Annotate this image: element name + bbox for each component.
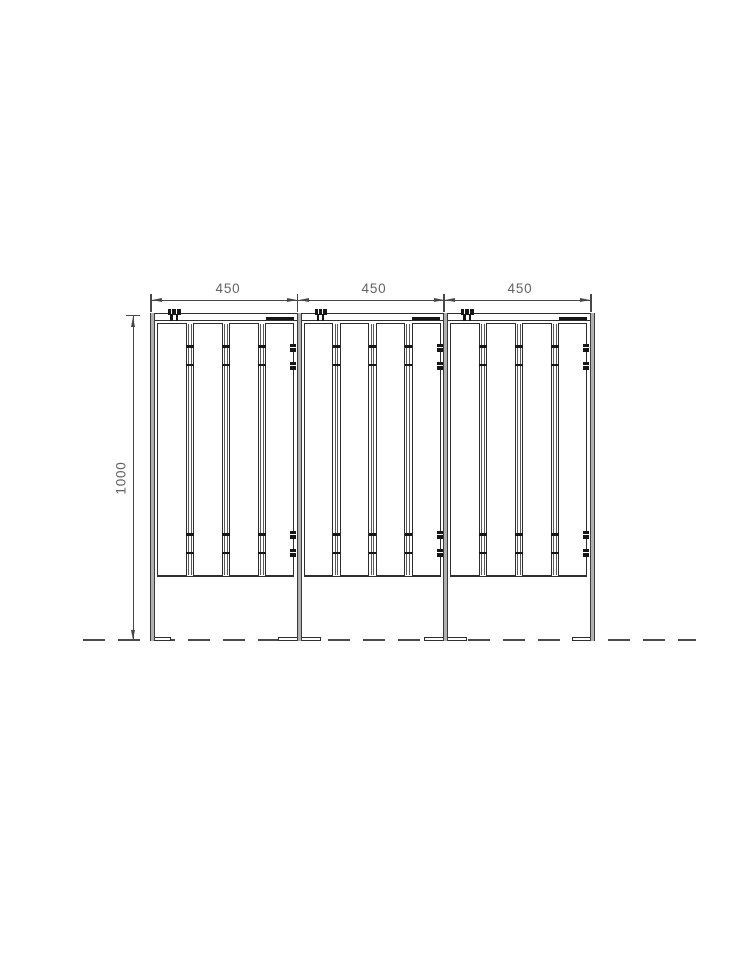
clamp-bolt	[463, 315, 465, 321]
rail-end-bracket	[412, 317, 440, 320]
dimension-arrow-left	[299, 298, 309, 302]
clamp-slit	[171, 309, 172, 314]
rear-rail-tick	[515, 533, 523, 536]
clamp-bolt	[317, 315, 319, 321]
slat-board	[486, 323, 515, 576]
clip-slit	[583, 365, 589, 366]
post-clip-fitting	[290, 549, 296, 558]
slat-board	[376, 323, 405, 576]
clip-slit	[583, 552, 589, 553]
clamp-bolt	[170, 315, 172, 321]
dimension-tick	[150, 294, 151, 312]
dimension-tick	[443, 294, 444, 312]
post-clip-fitting	[437, 344, 443, 353]
ground-dashed-line	[83, 639, 696, 641]
rear-rail-tick	[405, 533, 413, 536]
top-rail	[150, 313, 595, 321]
post-clip-fitting	[583, 362, 589, 371]
rear-rail-tick	[479, 345, 487, 348]
rear-rail-tick	[515, 364, 523, 367]
rear-rail-tick	[551, 533, 559, 536]
clip-slit	[437, 534, 443, 535]
clamp-slit	[318, 309, 319, 314]
rear-rail-tick	[333, 364, 341, 367]
dimension-arrow-right	[434, 298, 444, 302]
rear-rail-tick	[258, 533, 266, 536]
fence-post	[590, 313, 595, 641]
rear-rail-tick	[551, 345, 559, 348]
rear-rail-tick	[186, 552, 194, 555]
rear-rail-tick	[515, 345, 523, 348]
rear-rail-tick	[258, 345, 266, 348]
rear-rail-tick	[405, 364, 413, 367]
post-clip-fitting	[583, 531, 589, 540]
rear-rail-tick	[551, 552, 559, 555]
dimension-tick	[297, 294, 298, 312]
slat-board	[229, 323, 258, 576]
panel-bottom-edge	[304, 576, 441, 577]
clamp-slit	[469, 309, 470, 314]
rear-rail-tick	[222, 364, 230, 367]
slat-board	[340, 323, 369, 576]
rear-rail-tick	[551, 364, 559, 367]
rear-batten-edge	[260, 324, 264, 576]
rear-rail-tick	[333, 345, 341, 348]
slat-board	[193, 323, 222, 576]
rear-rail-tick	[222, 533, 230, 536]
dim-label-overall-height: 1000	[114, 461, 128, 494]
post-clip-fitting	[437, 549, 443, 558]
fence-post	[297, 313, 302, 641]
rear-batten-edge	[481, 324, 485, 576]
fence-post	[150, 313, 155, 641]
clip-slit	[290, 552, 296, 553]
post-clip-fitting	[290, 362, 296, 371]
rear-batten-edge	[188, 324, 192, 576]
rail-clamp-fitting	[315, 309, 328, 316]
rear-batten-edge	[406, 324, 410, 576]
rear-rail-tick	[515, 552, 523, 555]
rear-rail-tick	[186, 533, 194, 536]
rear-rail-tick	[479, 533, 487, 536]
post-clip-fitting	[437, 531, 443, 540]
rail-clamp-fitting	[168, 309, 181, 316]
clamp-slit	[464, 309, 465, 314]
dimension-arrow-left	[152, 298, 162, 302]
rear-rail-tick	[222, 552, 230, 555]
rear-rail-tick	[258, 364, 266, 367]
rear-rail-tick	[222, 345, 230, 348]
fence-post	[443, 313, 448, 641]
slat-board	[157, 323, 186, 576]
post-clip-fitting	[290, 344, 296, 353]
slat-board	[304, 323, 333, 576]
rear-rail-tick	[405, 345, 413, 348]
rail-clamp-fitting	[461, 309, 474, 316]
drawing-canvas: 450 450 450 1000	[0, 0, 750, 962]
rear-rail-tick	[186, 345, 194, 348]
clamp-bolt	[322, 315, 324, 321]
dim-label-panel-2-width: 450	[362, 282, 387, 296]
rear-rail-tick	[369, 552, 377, 555]
clamp-bolt	[469, 315, 471, 321]
rear-rail-tick	[333, 533, 341, 536]
dim-label-panel-1-width: 450	[216, 282, 241, 296]
rear-batten-edge	[371, 324, 375, 576]
clip-slit	[437, 347, 443, 348]
rear-rail-tick	[479, 552, 487, 555]
clamp-slit	[176, 309, 177, 314]
slat-board	[522, 323, 551, 576]
rear-rail-tick	[369, 364, 377, 367]
clip-slit	[437, 365, 443, 366]
rear-batten-edge	[224, 324, 228, 576]
rear-rail-tick	[369, 533, 377, 536]
rear-rail-tick	[258, 552, 266, 555]
dim-label-panel-3-width: 450	[508, 282, 533, 296]
dimension-arrow-down	[131, 630, 135, 640]
dimension-arrow-up	[131, 317, 135, 327]
dimension-arrow-left	[445, 298, 455, 302]
rear-rail-tick	[186, 364, 194, 367]
clip-slit	[290, 534, 296, 535]
rear-batten-edge	[553, 324, 557, 576]
panel-bottom-edge	[450, 576, 587, 577]
dimension-tick	[590, 294, 591, 312]
slat-board	[450, 323, 479, 576]
rail-end-bracket	[559, 317, 587, 320]
dimension-line-vertical	[133, 316, 134, 640]
post-clip-fitting	[583, 549, 589, 558]
clip-slit	[290, 365, 296, 366]
rear-batten-edge	[335, 324, 339, 576]
clip-slit	[290, 347, 296, 348]
post-clip-fitting	[290, 531, 296, 540]
rear-rail-tick	[333, 552, 341, 555]
rear-rail-tick	[405, 552, 413, 555]
panel-bottom-edge	[157, 576, 294, 577]
clip-slit	[437, 552, 443, 553]
clip-slit	[583, 534, 589, 535]
clamp-bolt	[176, 315, 178, 321]
post-clip-fitting	[437, 362, 443, 371]
rail-end-bracket	[266, 317, 294, 320]
rear-rail-tick	[369, 345, 377, 348]
clamp-slit	[322, 309, 323, 314]
post-clip-fitting	[583, 344, 589, 353]
rear-rail-tick	[479, 364, 487, 367]
dimension-arrow-right	[580, 298, 590, 302]
dimension-arrow-right	[287, 298, 297, 302]
clip-slit	[583, 347, 589, 348]
rear-batten-edge	[517, 324, 521, 576]
dimension-line-horizontal	[151, 300, 591, 301]
